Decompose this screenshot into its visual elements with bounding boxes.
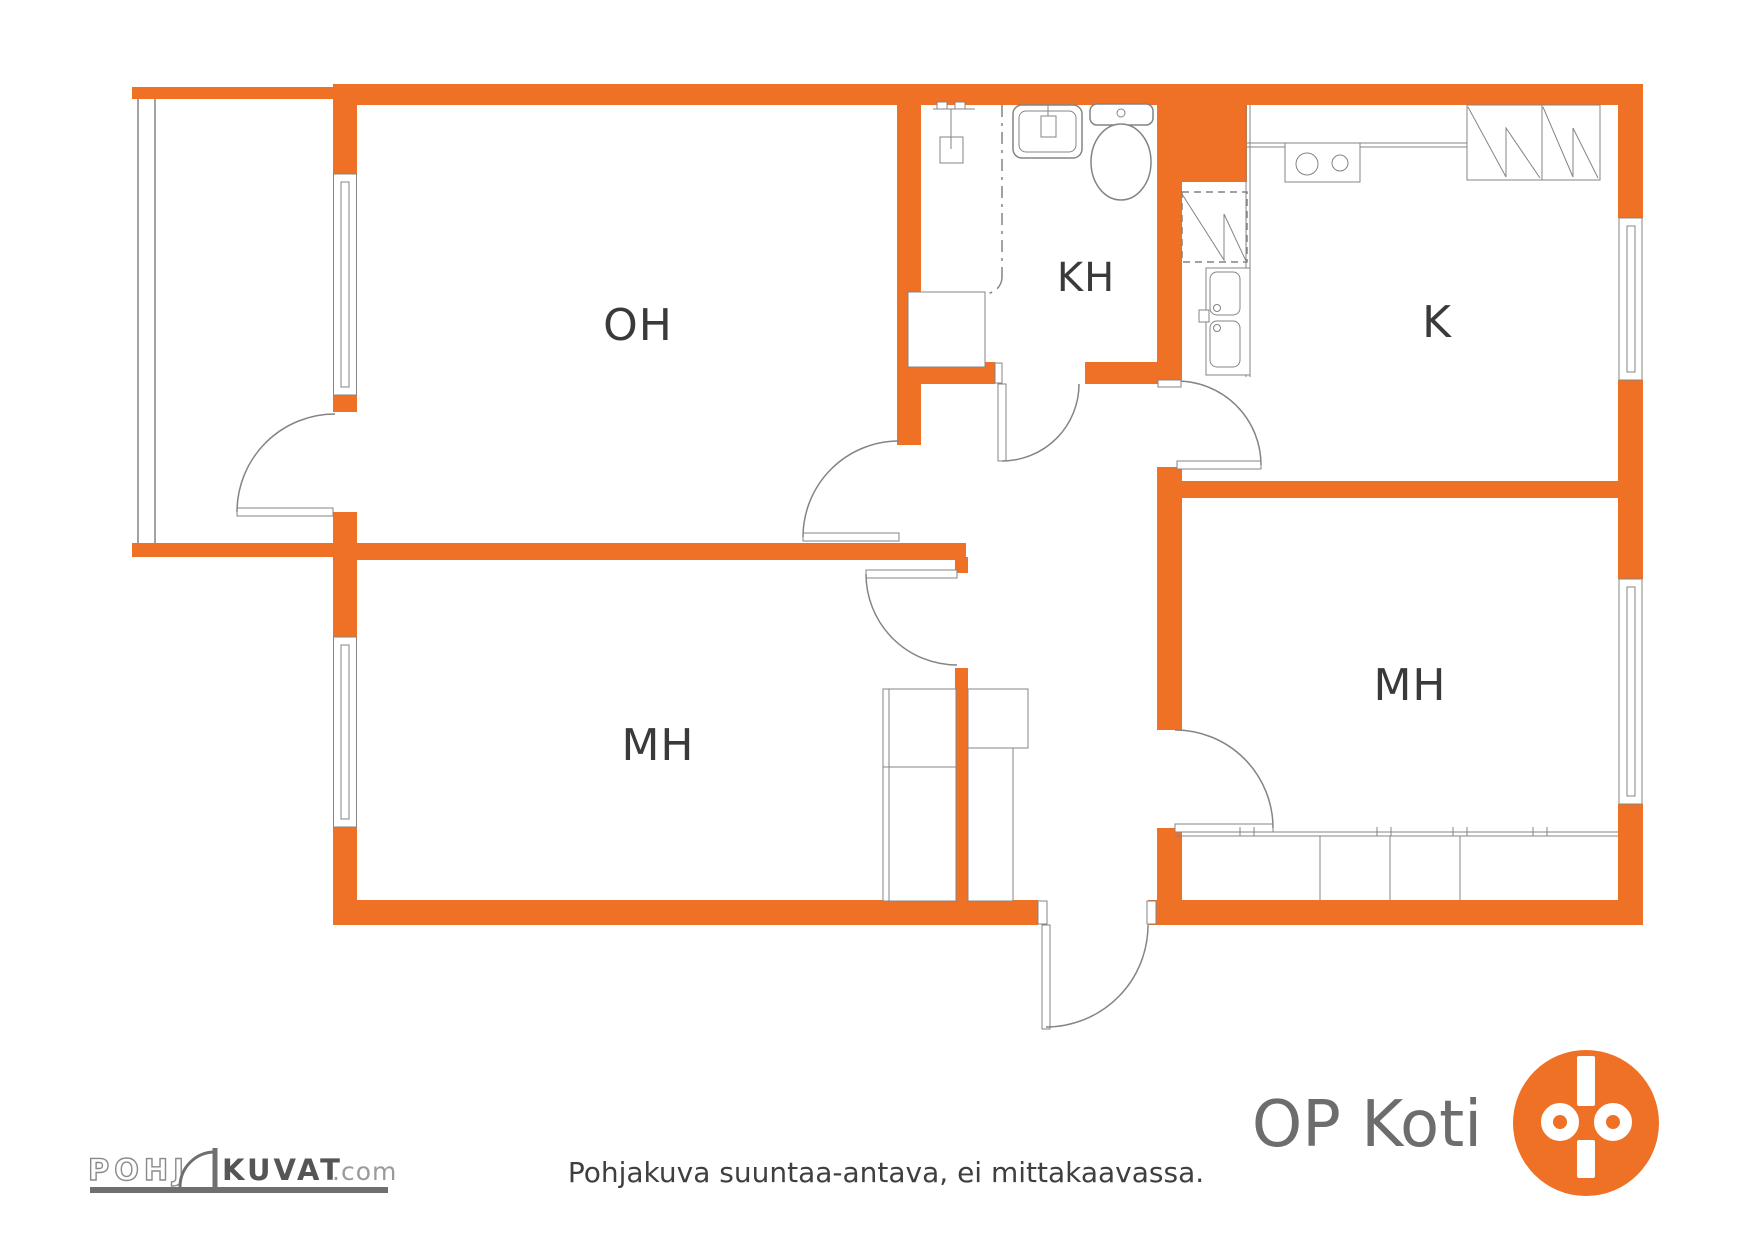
wall-segment bbox=[1157, 467, 1182, 497]
window-bedroom1 bbox=[334, 637, 357, 827]
window-balcony bbox=[334, 174, 357, 395]
door-entrance bbox=[1042, 925, 1148, 1029]
floorplan-page: OH KH K MH MH Pohjakuva suuntaa-antava, … bbox=[0, 0, 1754, 1241]
door-kitchen bbox=[1177, 381, 1261, 469]
closets bbox=[883, 689, 1618, 901]
room-label-bedroom1: MH bbox=[621, 720, 694, 771]
op-koti-logo: OP Koti bbox=[1252, 1050, 1659, 1196]
disclaimer-text: Pohjakuva suuntaa-antava, ei mittakaavas… bbox=[568, 1156, 1204, 1189]
wall-segment bbox=[333, 99, 357, 174]
closet-bedroom1 bbox=[883, 689, 956, 901]
wall-segment bbox=[955, 668, 968, 900]
op-logo-icon bbox=[1513, 1050, 1659, 1196]
wall-segment bbox=[333, 84, 1643, 105]
door-living-room bbox=[803, 441, 899, 541]
toilet bbox=[1090, 104, 1153, 200]
op-koti-text: OP Koti bbox=[1252, 1088, 1482, 1162]
door-bedroom2 bbox=[1175, 730, 1273, 832]
wall-cabinet bbox=[1182, 192, 1247, 262]
floorplan-drawing: OH KH K MH MH Pohjakuva suuntaa-antava, … bbox=[0, 0, 1754, 1241]
jamb-cap bbox=[1158, 380, 1181, 387]
room-label-bedroom2: MH bbox=[1373, 660, 1446, 711]
window-bedroom2 bbox=[1619, 579, 1642, 804]
wall-segment bbox=[1157, 497, 1182, 730]
pohjakuvat-part1: POHJ bbox=[88, 1153, 189, 1187]
door-bathroom bbox=[998, 384, 1079, 461]
wall-segment bbox=[1618, 84, 1643, 218]
pohjakuvat-underline bbox=[90, 1187, 388, 1193]
kitchen-sink bbox=[1199, 268, 1250, 375]
pohjakuvat-part2: KUVAT bbox=[222, 1153, 343, 1187]
fridge bbox=[1467, 105, 1600, 180]
wall-segment bbox=[1148, 900, 1643, 925]
window-kitchen bbox=[1619, 218, 1642, 380]
bathroom-fixtures bbox=[908, 102, 1153, 367]
wall-segment bbox=[132, 87, 333, 99]
wall-segment bbox=[333, 512, 357, 637]
doors bbox=[237, 381, 1273, 1029]
wall-segment bbox=[1182, 105, 1247, 182]
wall-segment bbox=[1085, 362, 1160, 384]
pohjakuvat-logo: POHJ KUVAT .com bbox=[88, 1148, 397, 1193]
door-jambs bbox=[995, 363, 1181, 924]
room-label-kitchen: K bbox=[1422, 297, 1452, 348]
shower bbox=[933, 102, 975, 163]
balcony bbox=[138, 99, 155, 543]
wall-segment bbox=[1182, 481, 1620, 498]
closet-bedroom2 bbox=[1175, 827, 1618, 900]
jamb-cap bbox=[1147, 901, 1156, 924]
pohjakuvat-suffix: .com bbox=[332, 1157, 397, 1186]
door-bedroom1 bbox=[866, 570, 957, 665]
closet-hallway bbox=[968, 689, 1028, 901]
shower-curtain bbox=[987, 105, 1002, 294]
wall-segment bbox=[1618, 380, 1643, 579]
stove bbox=[1285, 143, 1360, 182]
room-label-bathroom: KH bbox=[1057, 255, 1115, 301]
sink bbox=[1013, 105, 1082, 158]
wall-segment bbox=[357, 543, 966, 560]
room-label-living: OH bbox=[603, 300, 673, 351]
wall-segment bbox=[333, 900, 1038, 925]
jamb-cap bbox=[995, 363, 1002, 383]
jamb-cap bbox=[1038, 901, 1047, 924]
wall-segment bbox=[1157, 828, 1182, 900]
wall-segment bbox=[1157, 105, 1182, 380]
bathroom-cabinet bbox=[908, 292, 985, 367]
wall-segment bbox=[333, 395, 357, 412]
wall-segment bbox=[132, 543, 336, 557]
door-balcony bbox=[237, 414, 335, 516]
wall-segment bbox=[897, 105, 921, 445]
